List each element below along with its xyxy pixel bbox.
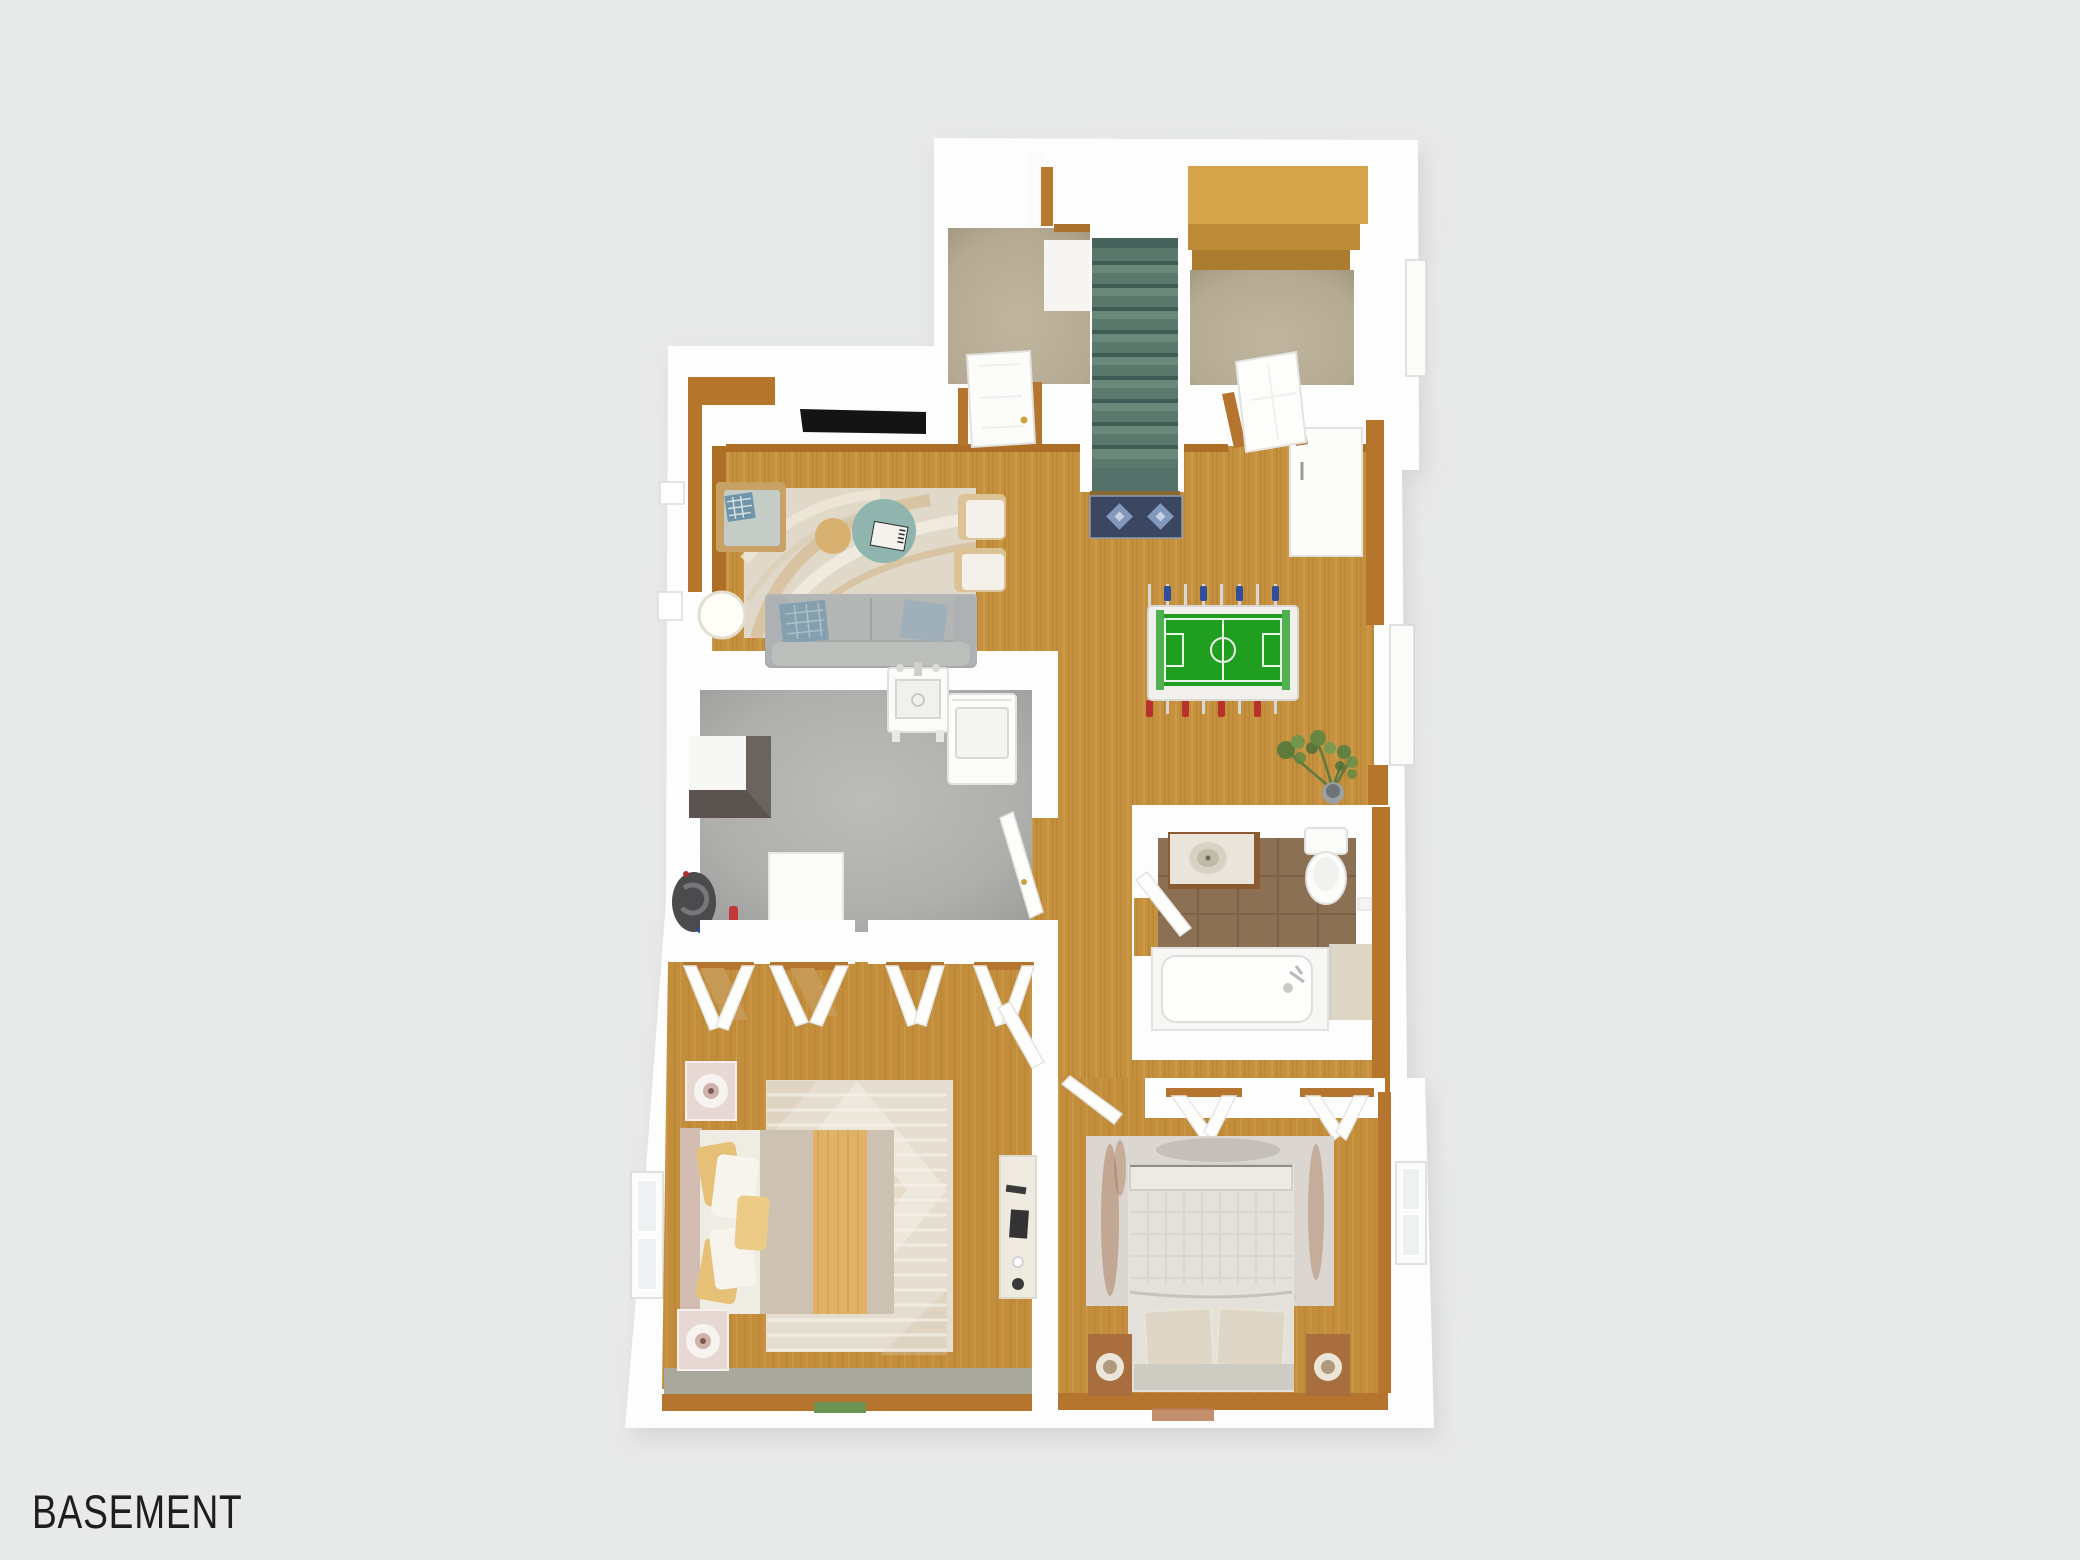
svg-text:BASEMENT: BASEMENT	[32, 1486, 243, 1538]
